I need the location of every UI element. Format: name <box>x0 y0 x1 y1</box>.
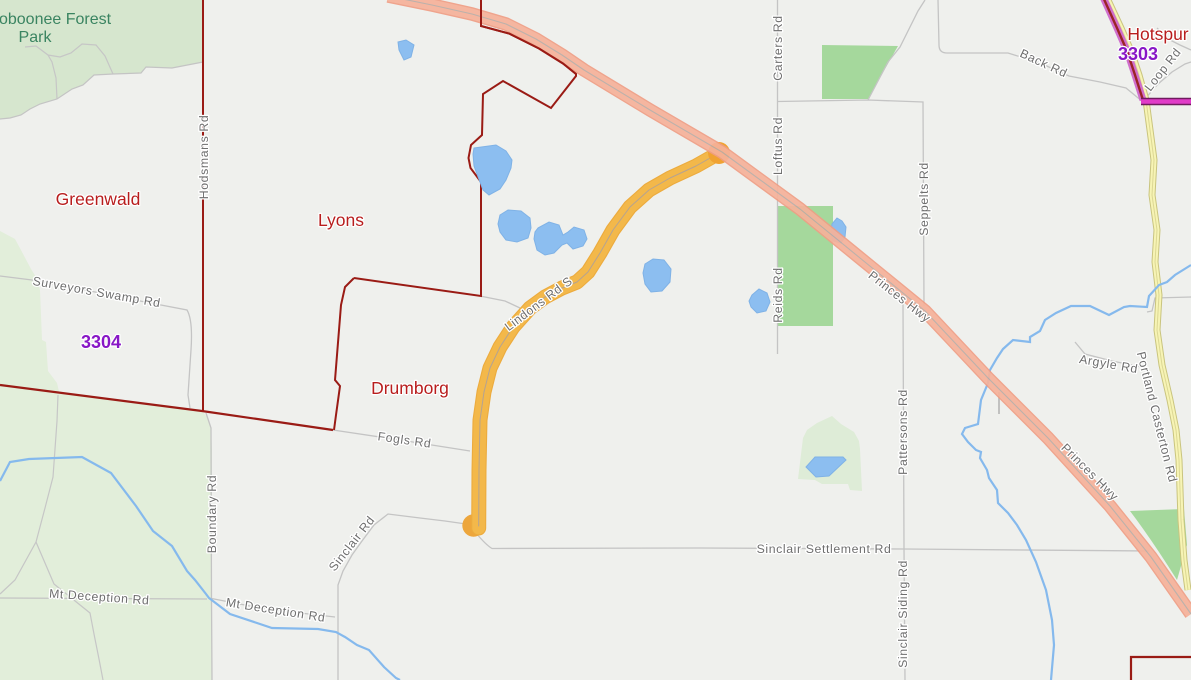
svg-text:Sinclair Siding Rd: Sinclair Siding Rd <box>896 560 910 668</box>
svg-text:Hotspur: Hotspur <box>1127 24 1188 44</box>
svg-text:Seppelts Rd: Seppelts Rd <box>917 162 931 236</box>
svg-text:Reids Rd: Reids Rd <box>771 267 785 322</box>
svg-text:Carters Rd: Carters Rd <box>771 15 785 80</box>
svg-text:Hodsmans Rd: Hodsmans Rd <box>197 115 211 200</box>
svg-text:Park: Park <box>19 29 53 46</box>
svg-text:oboonee Forest: oboonee Forest <box>0 11 112 28</box>
svg-text:Boundary Rd: Boundary Rd <box>205 475 219 553</box>
svg-text:Lyons: Lyons <box>318 210 364 230</box>
svg-text:3303: 3303 <box>1118 44 1158 64</box>
svg-text:Sinclair Settlement Rd: Sinclair Settlement Rd <box>757 542 892 556</box>
svg-text:Drumborg: Drumborg <box>371 378 449 398</box>
svg-text:Pattersons Rd: Pattersons Rd <box>896 389 910 475</box>
svg-text:Loftus Rd: Loftus Rd <box>771 117 785 175</box>
svg-text:3304: 3304 <box>81 332 121 352</box>
svg-text:Greenwald: Greenwald <box>56 189 141 209</box>
